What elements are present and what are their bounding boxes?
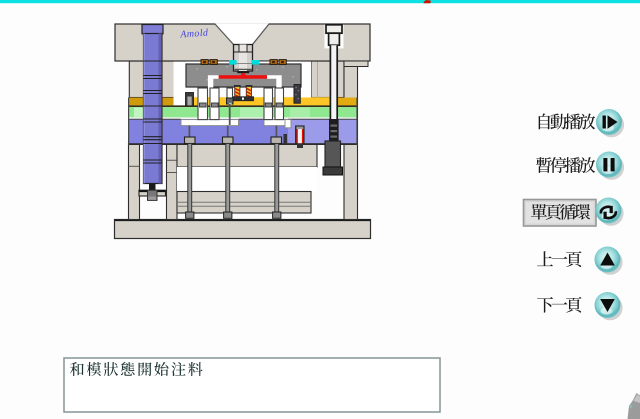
svg-text:Amold: Amold xyxy=(179,27,209,40)
